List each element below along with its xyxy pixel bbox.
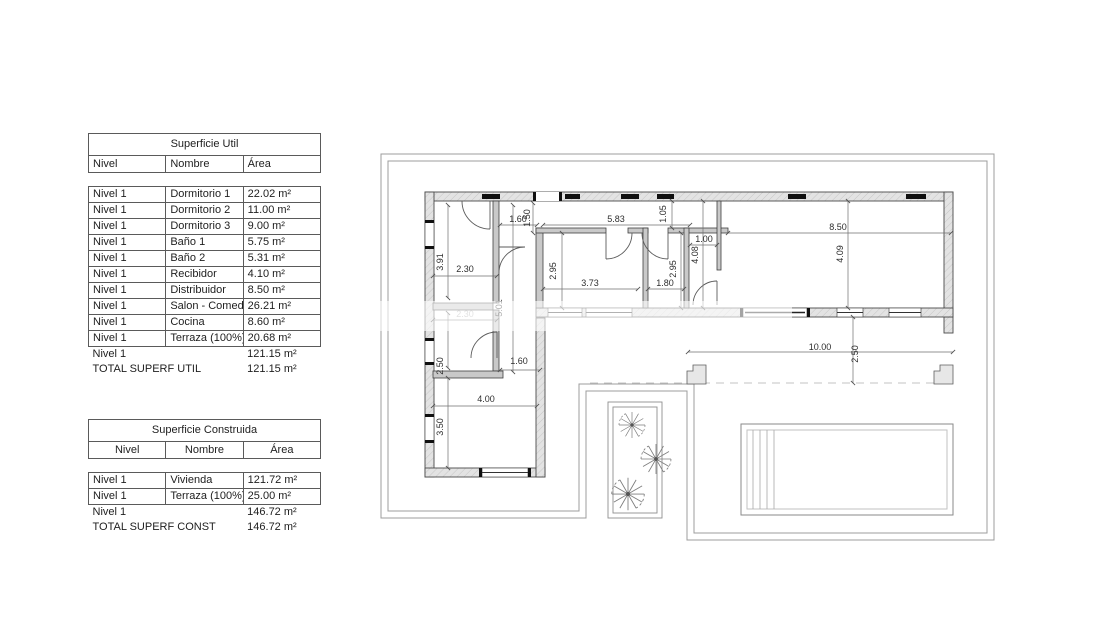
dimension-label: 1.05 [658, 205, 668, 223]
dimension-label: 2.30 [456, 264, 474, 274]
terrace-pillar [687, 365, 706, 384]
dimension-label: 4.08 [690, 246, 700, 264]
dimension-label: 4.09 [835, 245, 845, 263]
dimension-label: 5.01 [494, 299, 504, 317]
dimension-label: 1.60 [510, 356, 528, 366]
floor-plan-drawing: 1.601.505.831.058.501.004.084.092.953.73… [0, 0, 1110, 626]
dimension-label: 3.73 [581, 278, 599, 288]
dimension-label: 2.30 [456, 309, 474, 319]
dimension-label: 5.83 [607, 214, 625, 224]
door [693, 281, 717, 305]
dimension-label: 2.50 [850, 345, 860, 363]
dimension-label: 4.00 [477, 394, 495, 404]
dimension-label: 10.00 [809, 342, 832, 352]
terrace-pillar [934, 365, 953, 384]
terrace-edge [590, 365, 953, 384]
dimension-label: 3.91 [435, 253, 445, 271]
dimension-label: 1.50 [522, 209, 532, 227]
dimension-label: 8.50 [829, 222, 847, 232]
interior-walls [433, 201, 728, 378]
door [462, 201, 490, 229]
dimension-label: 2.95 [668, 260, 678, 278]
dimension-label: 1.80 [656, 278, 674, 288]
door [499, 247, 525, 273]
door [606, 233, 632, 259]
dimension-label: 1.00 [695, 234, 713, 244]
floor-plan-page: Superficie Util Nivel Nombre Área Nivel … [0, 0, 1110, 626]
dimension-label: 2.50 [435, 357, 445, 375]
dimension-label: 3.50 [435, 418, 445, 436]
garden-bed [608, 402, 671, 518]
dimension-label: 2.95 [548, 262, 558, 280]
swimming-pool [741, 424, 953, 515]
